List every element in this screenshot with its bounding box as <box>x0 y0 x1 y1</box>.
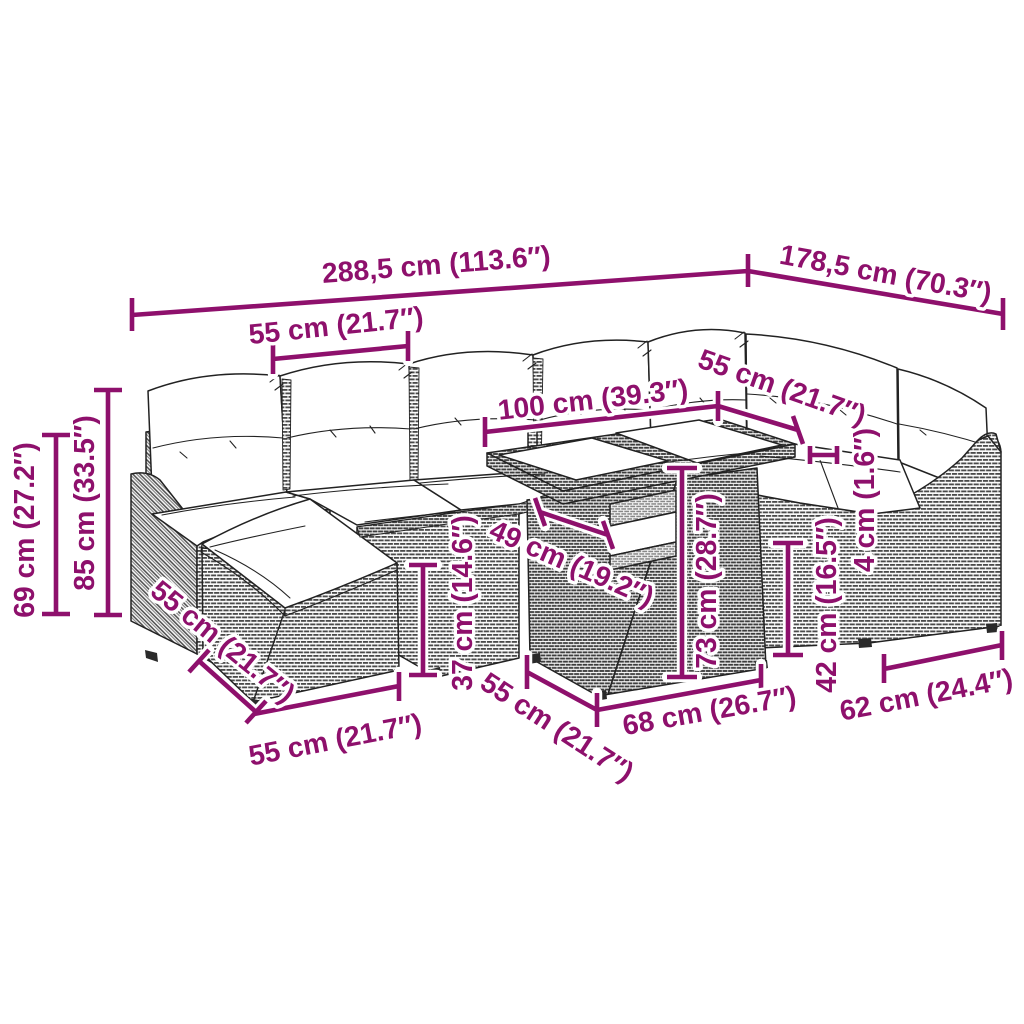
svg-text:37 cm (14.6″): 37 cm (14.6″) <box>446 515 478 691</box>
svg-text:69 cm (27.2″): 69 cm (27.2″) <box>8 442 40 618</box>
svg-text:73 cm (28.7″): 73 cm (28.7″) <box>690 493 722 669</box>
svg-text:42 cm (16.5″): 42 cm (16.5″) <box>810 517 842 693</box>
svg-text:85 cm (33.5″): 85 cm (33.5″) <box>68 415 100 591</box>
svg-text:4 cm (1.6″): 4 cm (1.6″) <box>848 428 880 572</box>
